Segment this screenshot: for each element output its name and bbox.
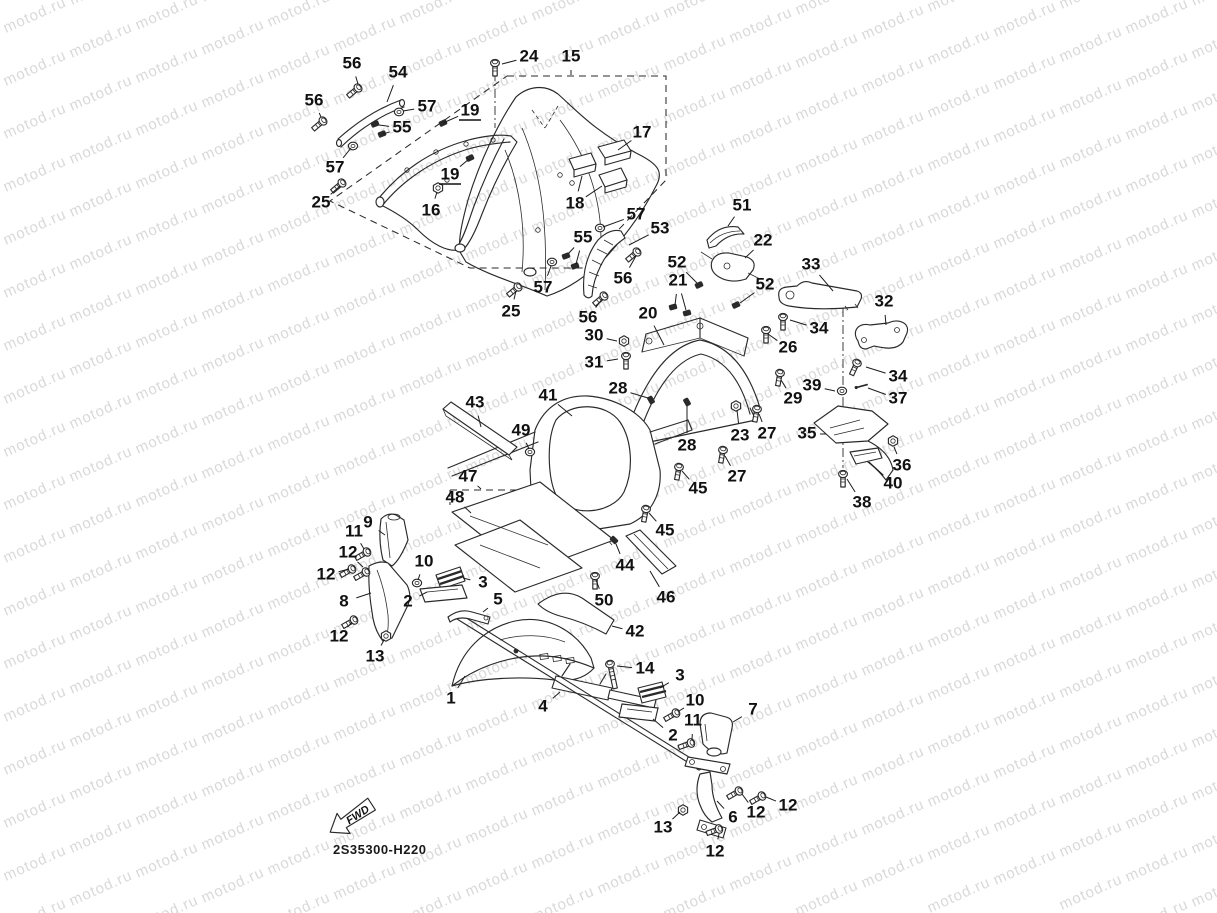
callout-number: 57 bbox=[534, 277, 553, 296]
watermark-text: motod.ru bbox=[67, 867, 135, 910]
watermark-text: motod.ru bbox=[1189, 126, 1217, 169]
watermark-text: motod.ru bbox=[1, 365, 69, 408]
watermark-text: motod.ru bbox=[793, 665, 861, 708]
watermark-text: motod.ru bbox=[793, 135, 861, 178]
watermark-text: motod.ru bbox=[661, 880, 729, 913]
watermark-text: motod.ru bbox=[265, 359, 333, 402]
watermark-text: motod.ru bbox=[67, 390, 135, 433]
watermark-text: motod.ru bbox=[1189, 338, 1217, 381]
watermark-text: motod.ru bbox=[331, 384, 399, 427]
watermark-text: motod.ru bbox=[199, 811, 267, 854]
leader-line bbox=[728, 217, 735, 226]
callout-number: 27 bbox=[758, 423, 777, 442]
callout-number: 6 bbox=[728, 807, 737, 826]
callout-45: 45 bbox=[649, 513, 674, 539]
watermark-text: motod.ru bbox=[265, 783, 333, 826]
watermark-text: motod.ru bbox=[859, 107, 927, 150]
washer-icon bbox=[525, 448, 534, 456]
watermark-text: motod.ru bbox=[925, 503, 993, 546]
watermark-text: motod.ru bbox=[529, 0, 597, 25]
callout-number: 13 bbox=[366, 646, 385, 665]
callout-3: 3 bbox=[660, 665, 685, 688]
callout-number: 14 bbox=[636, 658, 655, 677]
callout-number: 12 bbox=[317, 564, 336, 583]
watermark-text: motod.ru bbox=[199, 493, 267, 536]
watermark-text: motod.ru bbox=[727, 693, 795, 736]
callout-number: 12 bbox=[330, 626, 349, 645]
nut-icon bbox=[888, 436, 897, 446]
watermark-text: motod.ru bbox=[133, 733, 201, 776]
callout-number: 12 bbox=[779, 795, 798, 814]
watermark-text: motod.ru bbox=[1123, 737, 1191, 780]
callout-13: 13 bbox=[366, 640, 385, 665]
callout-number: 18 bbox=[566, 193, 585, 212]
leader-line bbox=[869, 462, 883, 475]
watermark-text: motod.ru bbox=[397, 780, 465, 823]
leader-line bbox=[675, 294, 676, 305]
callout-15: 15 bbox=[562, 46, 581, 75]
watermark-text: motod.ru bbox=[1123, 260, 1191, 303]
watermark-text: motod.ru bbox=[199, 228, 267, 271]
watermark-text: motod.ru bbox=[133, 786, 201, 829]
watermark-text: motod.ru bbox=[67, 655, 135, 698]
callout-number: 46 bbox=[657, 587, 676, 606]
pin-icon bbox=[854, 383, 868, 390]
watermark-text: motod.ru bbox=[331, 13, 399, 56]
watermark-text: motod.ru bbox=[793, 824, 861, 867]
callout-27: 27 bbox=[758, 414, 777, 442]
watermark-text: motod.ru bbox=[397, 886, 465, 913]
callout-number: 48 bbox=[446, 487, 465, 506]
watermark-text: motod.ru bbox=[67, 337, 135, 380]
watermark-text: motod.ru bbox=[133, 0, 201, 34]
callout-number: 26 bbox=[779, 337, 798, 356]
callout-number: 24 bbox=[520, 46, 539, 65]
watermark-text: motod.ru bbox=[463, 328, 531, 371]
watermark-text: motod.ru bbox=[661, 191, 729, 234]
watermark-text: motod.ru bbox=[1, 789, 69, 832]
watermark-text: motod.ru bbox=[1123, 419, 1191, 462]
watermark-text: motod.ru bbox=[925, 344, 993, 387]
watermark-text: motod.ru bbox=[1057, 712, 1125, 755]
watermark-text: motod.ru bbox=[331, 225, 399, 268]
watermark-text: motod.ru bbox=[1189, 285, 1217, 328]
watermark-text: motod.ru bbox=[67, 72, 135, 115]
watermark-text: motod.ru bbox=[529, 830, 597, 873]
watermark-text: motod.ru bbox=[793, 559, 861, 602]
watermark-text: motod.ru bbox=[199, 69, 267, 112]
watermark-text: motod.ru bbox=[925, 662, 993, 705]
watermark-text: motod.ru bbox=[1, 47, 69, 90]
watermark-text: motod.ru bbox=[991, 157, 1059, 200]
watermark-text: motod.ru bbox=[859, 849, 927, 892]
watermark-text: motod.ru bbox=[1057, 288, 1125, 331]
watermark-text: motod.ru bbox=[133, 627, 201, 670]
watermark-text: motod.ru bbox=[265, 518, 333, 561]
watermark-text: motod.ru bbox=[991, 422, 1059, 465]
washer-icon bbox=[595, 224, 604, 232]
watermark-text: motod.ru bbox=[595, 855, 663, 898]
callout-number: 36 bbox=[893, 455, 912, 474]
watermark-text: motod.ru bbox=[199, 175, 267, 218]
callout-number: 50 bbox=[595, 590, 614, 609]
watermark-text: motod.ru bbox=[1057, 235, 1125, 278]
callout-number: 56 bbox=[305, 90, 324, 109]
watermark-text: motod.ru bbox=[991, 210, 1059, 253]
watermark-text: motod.ru bbox=[1, 100, 69, 143]
callout-number: 28 bbox=[609, 378, 628, 397]
callout-number: 20 bbox=[639, 303, 658, 322]
watermark-text: motod.ru bbox=[199, 387, 267, 430]
leader-line bbox=[653, 719, 663, 728]
watermark-text: motod.ru bbox=[1057, 394, 1125, 437]
callout-number: 35 bbox=[798, 423, 817, 442]
watermark-text: motod.ru bbox=[1057, 553, 1125, 596]
watermark-text: motod.ru bbox=[397, 250, 465, 293]
bolt-icon bbox=[622, 352, 631, 369]
watermark-text: motod.ru bbox=[661, 85, 729, 128]
watermark-text: motod.ru bbox=[859, 690, 927, 733]
watermark-text: motod.ru bbox=[1, 683, 69, 726]
callout-number: 25 bbox=[502, 301, 521, 320]
watermark-text: motod.ru bbox=[397, 727, 465, 770]
watermark-text: motod.ru bbox=[199, 599, 267, 642]
watermark-text: motod.ru bbox=[991, 528, 1059, 571]
callout-number: 25 bbox=[312, 192, 331, 211]
callout-number: 22 bbox=[754, 230, 773, 249]
watermark-text: motod.ru bbox=[265, 306, 333, 349]
watermark-text: motod.ru bbox=[1123, 631, 1191, 674]
watermark-text: motod.ru bbox=[1123, 578, 1191, 621]
watermark-text: motod.ru bbox=[199, 281, 267, 324]
watermark-text: motod.ru bbox=[265, 0, 333, 31]
watermark-text: motod.ru bbox=[1057, 0, 1125, 13]
watermark-text: motod.ru bbox=[595, 325, 663, 368]
watermark-text: motod.ru bbox=[1, 206, 69, 249]
callout-number: 8 bbox=[339, 591, 348, 610]
callout-number: 15 bbox=[562, 46, 581, 65]
watermark-text: motod.ru bbox=[1123, 896, 1191, 913]
watermark-text: motod.ru bbox=[859, 213, 927, 256]
callout-number: 57 bbox=[627, 204, 646, 223]
watermark-text: motod.ru bbox=[1057, 23, 1125, 66]
watermark-text: motod.ru bbox=[991, 369, 1059, 412]
callout-number: 52 bbox=[756, 274, 775, 293]
part-bracket-32 bbox=[855, 321, 907, 349]
callout-10: 10 bbox=[415, 551, 434, 580]
exploded-parts-diagram: motod.rumotod.rumotod.rumotod.rumotod.ru… bbox=[0, 0, 1217, 913]
watermark-text: motod.ru bbox=[265, 41, 333, 84]
watermark-text: motod.ru bbox=[1189, 73, 1217, 116]
watermark-text: motod.ru bbox=[67, 284, 135, 327]
leader-line bbox=[742, 794, 748, 803]
callout-50: 50 bbox=[595, 580, 614, 609]
watermark-text: motod.ru bbox=[793, 718, 861, 761]
callout-number: 27 bbox=[728, 466, 747, 485]
watermark-text: motod.ru bbox=[463, 222, 531, 265]
watermark-text: motod.ru bbox=[67, 125, 135, 168]
callout-number: 56 bbox=[343, 53, 362, 72]
watermark-text: motod.ru bbox=[265, 730, 333, 773]
watermark-text: motod.ru bbox=[793, 877, 861, 913]
watermark-text: motod.ru bbox=[265, 412, 333, 455]
clip-icon bbox=[683, 397, 692, 407]
watermark-text: motod.ru bbox=[1123, 154, 1191, 197]
watermark-text: motod.ru bbox=[397, 621, 465, 664]
watermark-text: motod.ru bbox=[859, 637, 927, 680]
watermark-text: motod.ru bbox=[1, 153, 69, 196]
callout-number: 19 bbox=[441, 164, 460, 183]
watermark-text: motod.ru bbox=[925, 821, 993, 864]
leader-line bbox=[361, 543, 364, 549]
watermark-text: motod.ru bbox=[1, 471, 69, 514]
watermark-text: motod.ru bbox=[661, 774, 729, 817]
callout-number: 13 bbox=[654, 817, 673, 836]
washer-icon bbox=[412, 579, 421, 587]
watermark-text: motod.ru bbox=[67, 178, 135, 221]
watermark-text: motod.ru bbox=[1057, 129, 1125, 172]
watermark-text: motod.ru bbox=[331, 861, 399, 904]
callout-34: 34 bbox=[866, 366, 908, 385]
watermark-text: motod.ru bbox=[727, 57, 795, 100]
watermark-text: motod.ru bbox=[859, 584, 927, 627]
watermark-text: motod.ru bbox=[133, 97, 201, 140]
callout-number: 34 bbox=[889, 366, 908, 385]
watermark-text: motod.ru bbox=[133, 415, 201, 458]
callout-number: 11 bbox=[345, 521, 363, 540]
watermark-text: motod.ru bbox=[67, 708, 135, 751]
watermark-text: motod.ru bbox=[463, 805, 531, 848]
watermark-text: motod.ru bbox=[661, 138, 729, 181]
watermark-text: motod.ru bbox=[463, 699, 531, 742]
nut-icon bbox=[678, 805, 687, 815]
watermark-text: motod.ru bbox=[1189, 20, 1217, 63]
watermark-text: motod.ru bbox=[133, 521, 201, 564]
watermark-text: motod.ru bbox=[991, 51, 1059, 94]
callout-number: 40 bbox=[884, 473, 903, 492]
callout-number: 12 bbox=[339, 542, 358, 561]
watermark-text: motod.ru bbox=[1057, 341, 1125, 384]
clip-icon bbox=[668, 303, 677, 310]
watermark-text: motod.ru bbox=[1123, 472, 1191, 515]
watermark-text: motod.ru bbox=[265, 836, 333, 879]
watermark-text: motod.ru bbox=[991, 104, 1059, 147]
leader-line bbox=[356, 593, 371, 598]
leader-line bbox=[766, 797, 776, 801]
watermark-text: motod.ru bbox=[1, 259, 69, 302]
watermark-text: motod.ru bbox=[925, 609, 993, 652]
watermark-text: motod.ru bbox=[1057, 447, 1125, 490]
callout-number: 33 bbox=[802, 254, 821, 273]
watermark-text: motod.ru bbox=[265, 253, 333, 296]
callout-number: 57 bbox=[418, 96, 437, 115]
watermark-text: motod.ru bbox=[991, 740, 1059, 783]
watermark-text: motod.ru bbox=[133, 150, 201, 193]
leader-line bbox=[578, 176, 582, 191]
leader-line bbox=[568, 247, 574, 254]
callout-number: 3 bbox=[675, 665, 684, 684]
watermark-text: motod.ru bbox=[991, 263, 1059, 306]
callout-21: 21 bbox=[669, 270, 688, 310]
leader-line bbox=[650, 571, 659, 587]
watermark-text: motod.ru bbox=[133, 203, 201, 246]
callout-number: 53 bbox=[651, 218, 670, 237]
watermark-text: motod.ru bbox=[199, 122, 267, 165]
callout-number: 2 bbox=[403, 591, 412, 610]
callout-number: 7 bbox=[748, 699, 757, 718]
watermark-text: motod.ru bbox=[1, 736, 69, 779]
watermark-text: motod.ru bbox=[67, 231, 135, 274]
watermark-text: motod.ru bbox=[1189, 550, 1217, 593]
callout-number: 55 bbox=[393, 117, 412, 136]
watermark-text: motod.ru bbox=[1123, 366, 1191, 409]
watermark-text: motod.ru bbox=[463, 858, 531, 901]
callout-number: 29 bbox=[784, 388, 803, 407]
watermark-text: motod.ru bbox=[925, 768, 993, 811]
watermark-text: motod.ru bbox=[859, 796, 927, 839]
watermark-text: motod.ru bbox=[133, 574, 201, 617]
callout-number: 41 bbox=[539, 385, 558, 404]
watermark-text: motod.ru bbox=[991, 0, 1059, 41]
watermark-text: motod.ru bbox=[925, 556, 993, 599]
watermark-text: motod.ru bbox=[925, 238, 993, 281]
callout-number: 37 bbox=[889, 388, 908, 407]
callout-number: 43 bbox=[466, 392, 485, 411]
watermark-text: motod.ru bbox=[1123, 684, 1191, 727]
watermark-text: motod.ru bbox=[67, 602, 135, 645]
callout-32: 32 bbox=[875, 291, 894, 325]
watermark-text: motod.ru bbox=[1, 630, 69, 673]
watermark-text: motod.ru bbox=[1057, 500, 1125, 543]
callout-number: 49 bbox=[512, 420, 531, 439]
leader-line bbox=[478, 486, 481, 489]
watermark-text: motod.ru bbox=[925, 132, 993, 175]
leader-line bbox=[603, 219, 624, 227]
callout-number: 21 bbox=[669, 270, 688, 289]
watermark-text: motod.ru bbox=[793, 506, 861, 549]
leader-line bbox=[825, 389, 835, 391]
watermark-text: motod.ru bbox=[133, 680, 201, 723]
watermark-text: motod.ru bbox=[595, 7, 663, 50]
watermark-text: motod.ru bbox=[1189, 497, 1217, 540]
watermark-text: motod.ru bbox=[925, 450, 993, 493]
leader-line bbox=[612, 626, 622, 629]
watermark-text: motod.ru bbox=[1, 0, 69, 37]
callout-number: 51 bbox=[733, 195, 752, 214]
watermark-text: motod.ru bbox=[1, 312, 69, 355]
watermark-text: motod.ru bbox=[1189, 603, 1217, 646]
watermark-text: motod.ru bbox=[925, 26, 993, 69]
callout-number: 56 bbox=[614, 268, 633, 287]
watermark-text: motod.ru bbox=[67, 549, 135, 592]
watermark-text: motod.ru bbox=[991, 793, 1059, 836]
watermark-text: motod.ru bbox=[1189, 0, 1217, 10]
callout-number: 16 bbox=[422, 200, 441, 219]
watermark-text: motod.ru bbox=[463, 275, 531, 318]
watermark-text: motod.ru bbox=[991, 687, 1059, 730]
watermark-text: motod.ru bbox=[661, 615, 729, 658]
watermark-text: motod.ru bbox=[661, 297, 729, 340]
callout-number: 34 bbox=[810, 318, 829, 337]
watermark-text: motod.ru bbox=[1189, 656, 1217, 699]
callout-number: 10 bbox=[415, 551, 434, 570]
washer-icon bbox=[394, 108, 403, 116]
watermark-text: motod.ru bbox=[1189, 709, 1217, 752]
watermark-text: motod.ru bbox=[1123, 48, 1191, 91]
watermark-text: motod.ru bbox=[133, 309, 201, 352]
watermark-text: motod.ru bbox=[397, 0, 465, 28]
callout-number: 55 bbox=[574, 227, 593, 246]
callout-number: 1 bbox=[446, 688, 455, 707]
watermark-text: motod.ru bbox=[67, 814, 135, 857]
watermark-text: motod.ru bbox=[529, 724, 597, 767]
watermark-text: motod.ru bbox=[595, 60, 663, 103]
drawing-code: 2S35300-H220 bbox=[333, 842, 426, 857]
watermark-text: motod.ru bbox=[727, 587, 795, 630]
watermark-text: motod.ru bbox=[595, 749, 663, 792]
watermark-text: motod.ru bbox=[199, 440, 267, 483]
watermark-text: motod.ru bbox=[1123, 0, 1191, 38]
watermark-text: motod.ru bbox=[265, 147, 333, 190]
watermark-text: motod.ru bbox=[991, 581, 1059, 624]
washer-icon bbox=[348, 142, 357, 150]
watermark-text: motod.ru bbox=[925, 874, 993, 913]
watermark-text: motod.ru bbox=[1, 895, 69, 913]
watermark-text: motod.ru bbox=[991, 316, 1059, 359]
watermark-text: motod.ru bbox=[727, 640, 795, 683]
watermark-text: motod.ru bbox=[331, 437, 399, 480]
watermark-text: motod.ru bbox=[991, 634, 1059, 677]
watermark-text: motod.ru bbox=[859, 54, 927, 97]
watermark-text: motod.ru bbox=[1189, 179, 1217, 222]
watermark-text: motod.ru bbox=[67, 761, 135, 804]
watermark-text: motod.ru bbox=[793, 188, 861, 231]
watermark-text: motod.ru bbox=[793, 612, 861, 655]
watermark-text: motod.ru bbox=[1057, 76, 1125, 119]
callout-39: 39 bbox=[803, 375, 835, 394]
callout-number: 31 bbox=[585, 352, 604, 371]
watermark-text: motod.ru bbox=[199, 16, 267, 59]
callout-30: 30 bbox=[585, 325, 617, 344]
callout-number: 30 bbox=[585, 325, 604, 344]
watermark-text: motod.ru bbox=[1057, 606, 1125, 649]
watermark-text: motod.ru bbox=[925, 0, 993, 16]
watermark-text: motod.ru bbox=[925, 291, 993, 334]
callout-number: 12 bbox=[747, 802, 766, 821]
watermark-text: motod.ru bbox=[925, 185, 993, 228]
watermark-text: motod.ru bbox=[793, 453, 861, 496]
watermark-text: motod.ru bbox=[727, 746, 795, 789]
washer-icon bbox=[837, 387, 846, 395]
watermark-text: motod.ru bbox=[67, 496, 135, 539]
callout-number: 45 bbox=[689, 478, 708, 497]
watermark-text: motod.ru bbox=[1123, 525, 1191, 568]
watermark-text: motod.ru bbox=[331, 331, 399, 374]
watermark-text: motod.ru bbox=[265, 624, 333, 667]
callout-number: 11 bbox=[684, 710, 702, 729]
watermark-text: motod.ru bbox=[133, 362, 201, 405]
watermark-text: motod.ru bbox=[1057, 871, 1125, 913]
watermark-text: motod.ru bbox=[133, 468, 201, 511]
callout-2: 2 bbox=[653, 719, 678, 744]
callout-number: 2 bbox=[668, 725, 677, 744]
part-bracket-9 bbox=[380, 514, 408, 566]
watermark-text: motod.ru bbox=[793, 771, 861, 814]
watermark-text: motod.ru bbox=[1189, 868, 1217, 911]
watermark-text: motod.ru bbox=[727, 481, 795, 524]
callout-number: 23 bbox=[731, 425, 750, 444]
leader-line bbox=[435, 192, 437, 199]
